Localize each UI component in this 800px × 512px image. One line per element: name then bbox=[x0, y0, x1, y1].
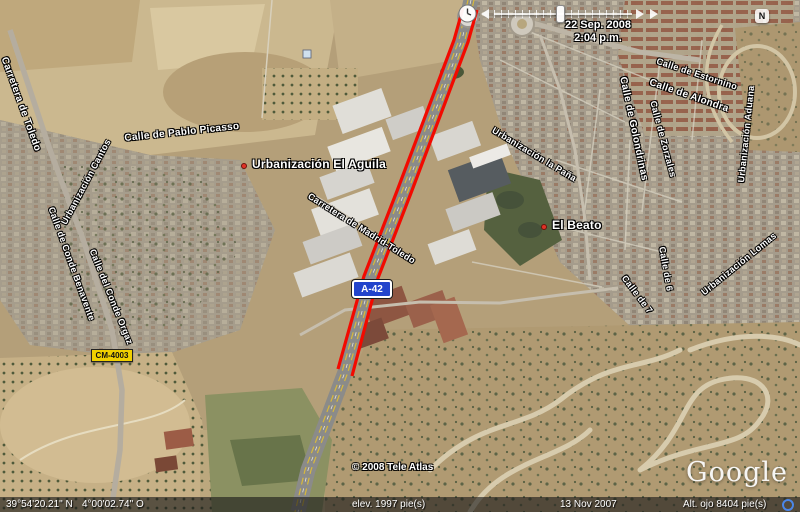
slider-step-back-arrow[interactable] bbox=[481, 9, 489, 19]
place-label-el-aguila: Urbanización El Aguila bbox=[252, 158, 386, 170]
road-shield-cm4003: CM-4003 bbox=[91, 349, 133, 362]
placemark-dot-el-aguila[interactable] bbox=[241, 163, 247, 169]
slider-step-forward-arrow[interactable] bbox=[636, 9, 644, 19]
slider-latest-arrow[interactable] bbox=[650, 9, 658, 19]
google-earth-viewport[interactable]: Carretera de Toledo Calle de Pablo Picas… bbox=[0, 0, 800, 512]
streaming-indicator-icon bbox=[782, 499, 794, 511]
imagery-date: 22 Sep. 2008 bbox=[552, 19, 644, 32]
placemark-dot-el-beato[interactable] bbox=[541, 224, 547, 230]
status-eye-altitude: Alt. ojo 8404 pie(s) bbox=[683, 497, 766, 512]
compass-north-indicator[interactable]: N bbox=[755, 9, 769, 23]
status-longitude: 4°00'02.74" O bbox=[82, 497, 144, 512]
road-shield-a42: A-42 bbox=[352, 280, 392, 298]
photo-placemark-icon bbox=[303, 50, 311, 58]
google-logo: Google bbox=[686, 457, 788, 488]
clock-icon[interactable] bbox=[458, 4, 477, 23]
place-label-el-beato: El Beato bbox=[552, 219, 602, 231]
status-bar: 39°54'20.21" N 4°00'02.74" O elev. 1997 … bbox=[0, 497, 800, 512]
imagery-timestamp: 22 Sep. 2008 2:04 p.m. bbox=[552, 19, 644, 45]
tele-atlas-copyright: © 2008 Tele Atlas bbox=[352, 462, 433, 473]
status-elevation: elev. 1997 pie(s) bbox=[352, 497, 425, 512]
imagery-time: 2:04 p.m. bbox=[552, 32, 644, 45]
status-imagery-date: 13 Nov 2007 bbox=[560, 497, 617, 512]
status-latitude: 39°54'20.21" N bbox=[6, 497, 73, 512]
